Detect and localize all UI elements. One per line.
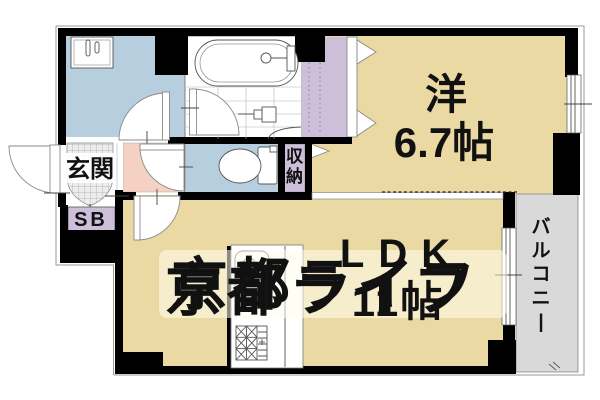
floor-plan-image: 京都ライフ 京都ライフ 洋 6.7帖 LDK 11帖 玄関 SB 収納 バルコニ… <box>0 0 600 400</box>
entrance-step <box>113 143 123 192</box>
storage-label: 収納 <box>286 147 304 186</box>
ldk-size: 11帖 <box>352 278 444 325</box>
western-room-size: 6.7帖 <box>394 119 494 166</box>
washbasin <box>71 37 113 68</box>
entrance-label: 玄関 <box>66 155 114 183</box>
bathtub <box>195 40 298 86</box>
closet-door-strip <box>347 37 357 137</box>
ldk-label: LDK <box>340 232 464 276</box>
toilet-fixture <box>219 146 277 184</box>
floor-plan-svg: 京都ライフ 京都ライフ 洋 6.7帖 LDK 11帖 玄関 SB 収納 バルコニ… <box>0 0 600 400</box>
western-room-label: 洋 <box>425 71 467 118</box>
western-room-window <box>564 75 592 133</box>
shoe-box-label: SB <box>74 209 108 231</box>
stove <box>236 326 267 360</box>
sliding-partition <box>312 192 518 199</box>
entrance-door <box>9 145 70 193</box>
